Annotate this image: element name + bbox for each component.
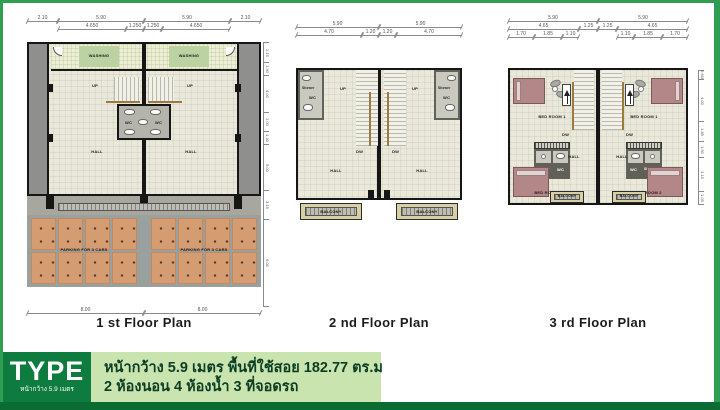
dimension-label: 1.05 [700, 194, 704, 202]
wc-label: WC [309, 95, 316, 100]
toilet-icon [124, 109, 135, 115]
plan2-caption: 2 nd Floor Plan [290, 315, 468, 330]
parking-tile [85, 252, 110, 284]
dimension-label: 5.90 [547, 16, 559, 21]
staircase-right [148, 77, 174, 101]
dimension: 2.15 [264, 42, 269, 62]
wardrobe [626, 142, 662, 149]
bathroom-interior: Shower WC [436, 72, 458, 118]
dimension-label: 1.85 [642, 32, 654, 37]
pillow [650, 170, 680, 176]
dimension: 5.90 [144, 15, 230, 22]
up-label: UP [187, 83, 193, 88]
dimension-label: 1.40 [265, 65, 269, 73]
dimension: 1.70 [662, 31, 688, 38]
hall-label: HALL [608, 154, 636, 159]
dimension: 5.90 [379, 21, 462, 28]
frame-top [0, 0, 720, 3]
parking-tile [85, 218, 110, 250]
parking-tile [58, 252, 83, 284]
door-swing-icon [226, 47, 235, 56]
wc-label: WC [155, 120, 162, 125]
parking-tile [205, 252, 230, 284]
dimension: 5.90 [598, 15, 688, 22]
dimension-label: 2.10 [37, 16, 49, 21]
dimension-row: 2.10 5.90 5.90 2.10 [27, 15, 261, 22]
dimension: 1.20 [379, 29, 396, 36]
dimension-label: 2.00 [265, 118, 269, 126]
dimension-row: 5.90 5.90 [508, 15, 688, 22]
wc-label: WC [125, 120, 132, 125]
dimension: 4.00 [264, 75, 269, 112]
dimension-label: 5.90 [181, 16, 193, 21]
deck-hatch [58, 203, 230, 211]
dimension: 0.665 [699, 70, 704, 79]
dimension-label: 5.90 [637, 16, 649, 21]
dimension: 1.85 [699, 121, 704, 141]
dimension-label: 4.70 [423, 30, 435, 35]
dimension-row: 4.650 1.250 1.250 4.650 [58, 23, 230, 30]
section-arrow-icon [562, 84, 571, 106]
dimension-label: 3.15 [700, 171, 704, 179]
dimension-label: 4.65 [647, 24, 659, 29]
dimension: 1.10 [562, 31, 579, 38]
dimension: 3.15 [264, 190, 269, 219]
shower-drain-icon [541, 154, 546, 159]
parking-tile [31, 218, 56, 250]
stair-rail [369, 92, 371, 146]
dimension: 1.20 [362, 29, 379, 36]
dimension: 1.40 [264, 131, 269, 144]
pillow [675, 81, 680, 101]
toilet-icon [445, 104, 455, 111]
dimension-label: 5.90 [415, 22, 427, 27]
building-outline-floor1: WASHING WASHING UP UP WC WC HALL HALL [27, 42, 261, 196]
column [235, 134, 241, 142]
staircase-left [574, 70, 594, 130]
bed-bedroom1-left [513, 78, 545, 104]
building-outline-floor3: DW DW BED ROOM 1 BED ROOM 1 [508, 68, 688, 205]
dimension: 5.00 [264, 144, 269, 190]
parking-area: PARKING FOR 3 CARS PARKING FOR 3 CARS [27, 215, 261, 287]
balcony-right: BALCONY [612, 191, 646, 203]
dimension: 4.65 [508, 23, 579, 30]
balcony-right: BALCONY [396, 203, 458, 220]
bathroom-left: Shower WC [298, 70, 324, 120]
type-title: TYPE [3, 356, 91, 386]
dimension-label: 4.00 [700, 97, 704, 105]
hall-label: HALL [316, 168, 356, 173]
toilet-icon [150, 129, 161, 135]
side-walkway-right [237, 44, 259, 194]
dimension: 3.15 [699, 157, 704, 191]
wc-label: WC [557, 167, 564, 172]
dimension-row: 5.90 5.90 [296, 21, 462, 28]
dw-label: DW [392, 149, 399, 154]
dimension-label: 5.90 [332, 22, 344, 27]
party-wall [596, 70, 600, 203]
door-post [368, 190, 374, 198]
spec-box: หน้ากว้าง 5.9 เมตร พื้นที่ใช้สอย 182.77 … [91, 352, 381, 402]
wardrobe [534, 142, 570, 149]
dw-label: DW [562, 132, 569, 137]
shower-drain-icon [650, 154, 655, 159]
toilet-icon [303, 104, 313, 111]
dimension: 2.00 [264, 112, 269, 131]
balcony-label: BALCONY [613, 194, 645, 199]
dimension-label: 1.70 [515, 32, 527, 37]
dimension-label: 1.10 [620, 32, 632, 37]
parking-tile [31, 252, 56, 284]
dimension-label: 2.10 [240, 16, 252, 21]
up-label: UP [412, 86, 418, 91]
hall-label: HALL [171, 149, 211, 154]
stair-rail [387, 92, 389, 146]
door-post [46, 196, 54, 209]
section-arrow-icon [625, 84, 634, 106]
side-walkway-left [29, 44, 49, 194]
dimension-label: 1.40 [265, 134, 269, 142]
dimension: 1.70 [508, 31, 534, 38]
dimension: 4.650 [162, 23, 230, 30]
frame-left [0, 0, 3, 410]
door-post [234, 196, 242, 209]
dimension: 1.10 [617, 31, 634, 38]
dimension: 4.70 [396, 29, 462, 36]
dimension-label: 1.250 [146, 24, 161, 29]
dimension: 8.00 [144, 307, 261, 314]
door-swing-icon [53, 47, 62, 56]
dw-label: DW [356, 149, 363, 154]
staircase-left [114, 77, 140, 101]
dimension-label: 1.20 [365, 30, 377, 35]
dimension: 5.90 [58, 15, 144, 22]
pillow [516, 81, 521, 101]
shower-label: Shower [302, 86, 315, 90]
building-outline-floor2: Shower WC Shower WC UP UP DW DW HALL [296, 68, 462, 200]
dimension-row: 8.00 8.00 [27, 307, 261, 314]
dimension: 1.250 [126, 23, 144, 30]
dimension: 1.25 [579, 23, 598, 30]
door-post [384, 190, 390, 198]
type-subtitle: หน้ากว้าง 5.9 เมตร [3, 386, 91, 394]
balcony-label: BALCONY [397, 209, 457, 214]
parking-tile [232, 252, 257, 284]
sink-icon [447, 75, 456, 81]
balcony-label: BALCONY [301, 209, 361, 214]
second-floor-plan: 5.90 5.90 4.70 1.20 1.20 4.70 Shower WC [290, 12, 480, 342]
dimension-label: 8.00 [80, 308, 92, 313]
plan1-caption: 1 st Floor Plan [22, 315, 266, 330]
dimension: 1.85 [634, 31, 662, 38]
dimension-label: 1.25 [602, 24, 614, 29]
dimension: 1.50 [699, 141, 704, 157]
dimension-label: 1.250 [128, 24, 143, 29]
up-label: UP [92, 83, 98, 88]
stair-rail [572, 82, 574, 130]
parking-tile [178, 252, 203, 284]
pillow [516, 170, 546, 176]
stair-rail [622, 82, 624, 130]
dimension-row: 4.70 1.20 1.20 4.70 [296, 29, 462, 36]
dimension-label: 5.00 [265, 164, 269, 172]
dimension-row: 4.65 1.25 1.25 4.65 [508, 23, 688, 30]
plan3-caption: 3 rd Floor Plan [500, 315, 696, 330]
vertical-dimension-column: 2.15 1.40 4.00 2.00 1.40 5.00 3.15 6.00 [263, 42, 269, 307]
dimension-label: 1.10 [565, 32, 577, 37]
dimension: 1.85 [534, 31, 562, 38]
dimension-label: 4.650 [85, 24, 100, 29]
balcony-left: BALCONY [300, 203, 362, 220]
hall-label: HALL [560, 154, 588, 159]
sink-icon [302, 75, 311, 81]
wc-core: WC WC [117, 104, 171, 140]
dimension: 2.10 [27, 15, 58, 22]
table-icon [638, 86, 644, 92]
dimension: 4.650 [58, 23, 126, 30]
dimension-row: 1.10 1.85 1.70 [617, 31, 688, 38]
hall-label: HALL [77, 149, 117, 154]
washing-label: WASHING [81, 53, 117, 58]
balcony-left: BALCONY [550, 191, 584, 203]
dimension: 5.90 [296, 21, 379, 28]
dimension-label: 1.85 [542, 32, 554, 37]
up-label: UP [340, 86, 346, 91]
type-box: TYPE หน้ากว้าง 5.9 เมตร [3, 352, 91, 402]
dimension: 1.25 [598, 23, 617, 30]
toilet-icon [124, 129, 135, 135]
first-floor-plan: 2.10 5.90 5.90 2.10 4.650 1.250 1.250 4.… [22, 12, 274, 342]
dimension: 1.05 [699, 191, 704, 205]
bedroom1-label: BED ROOM 1 [616, 114, 672, 119]
bed-bedroom1-right [651, 78, 683, 104]
dimension: 6.00 [264, 219, 269, 307]
parking-tile [205, 218, 230, 250]
dimension-label: 4.70 [323, 30, 335, 35]
frame-right [714, 0, 720, 410]
parking-label: PARKING FOR 3 CARS [156, 247, 252, 252]
toilet-icon [150, 109, 161, 115]
dimension-label: 4.650 [189, 24, 204, 29]
wc-label: WC [630, 167, 637, 172]
dimension-label: 8.00 [197, 308, 209, 313]
frame-bottom-bar [0, 402, 720, 410]
dimension: 4.70 [296, 29, 362, 36]
brochure-page: 2.10 5.90 5.90 2.10 4.650 1.250 1.250 4.… [0, 0, 720, 410]
dimension-label: 5.90 [95, 16, 107, 21]
dimension: 1.40 [264, 62, 269, 75]
column [47, 134, 53, 142]
dimension-label: 1.70 [669, 32, 681, 37]
parking-tile [178, 218, 203, 250]
dimension-label: 1.25 [583, 24, 595, 29]
dimension: 1.250 [144, 23, 162, 30]
dimension-label: 1.50 [700, 146, 704, 154]
staircase-right [602, 70, 622, 130]
staircase-left [356, 70, 378, 146]
spec-line-2: 2 ห้องนอน 4 ห้องน้ำ 3 ที่จอดรถ [104, 378, 381, 397]
spec-line-1: หน้ากว้าง 5.9 เมตร พื้นที่ใช้สอย 182.77 … [104, 359, 381, 378]
column [235, 84, 241, 92]
dimension-row: 1.70 1.85 1.10 [508, 31, 579, 38]
wc-label: WC [443, 95, 450, 100]
dimension: 4.65 [617, 23, 688, 30]
terrace-strip [27, 196, 261, 215]
balcony-label: BALCONY [551, 194, 583, 199]
dimension: 2.10 [230, 15, 261, 22]
dw-label: DW [626, 132, 633, 137]
bathroom-interior: Shower WC [300, 72, 322, 118]
dimension: 8.00 [27, 307, 144, 314]
dimension-label: 1.85 [700, 128, 704, 136]
dimension-label: 3.15 [265, 201, 269, 209]
dimension-label: 6.00 [265, 259, 269, 267]
sink-icon [138, 119, 148, 125]
table-icon [552, 86, 558, 92]
parking-tile [232, 218, 257, 250]
dimension: 4.00 [699, 79, 704, 121]
parking-tile [112, 252, 137, 284]
parking-tile [112, 218, 137, 250]
stair-rail [106, 101, 140, 103]
shower-label: Shower [438, 86, 451, 90]
parking-label: PARKING FOR 3 CARS [36, 247, 132, 252]
dimension-label: 2.15 [265, 49, 269, 57]
parking-tile [151, 252, 176, 284]
dimension: 5.90 [508, 15, 598, 22]
stair-rail [148, 101, 182, 103]
vertical-dimension-column: 0.665 4.00 1.85 1.50 3.15 1.05 [698, 70, 704, 205]
dimension-label: 1.20 [382, 30, 394, 35]
parking-tile [151, 218, 176, 250]
bedroom1-label: BED ROOM 1 [524, 114, 580, 119]
dimension-label: 4.65 [538, 24, 550, 29]
column [47, 84, 53, 92]
bathroom-right: Shower WC [434, 70, 460, 120]
dimension-label: 4.00 [265, 90, 269, 98]
hall-label: HALL [402, 168, 442, 173]
third-floor-plan: 5.90 5.90 4.65 1.25 1.25 4.65 1.70 1.85 … [500, 12, 715, 342]
washing-label: WASHING [171, 53, 207, 58]
parking-tile [58, 218, 83, 250]
